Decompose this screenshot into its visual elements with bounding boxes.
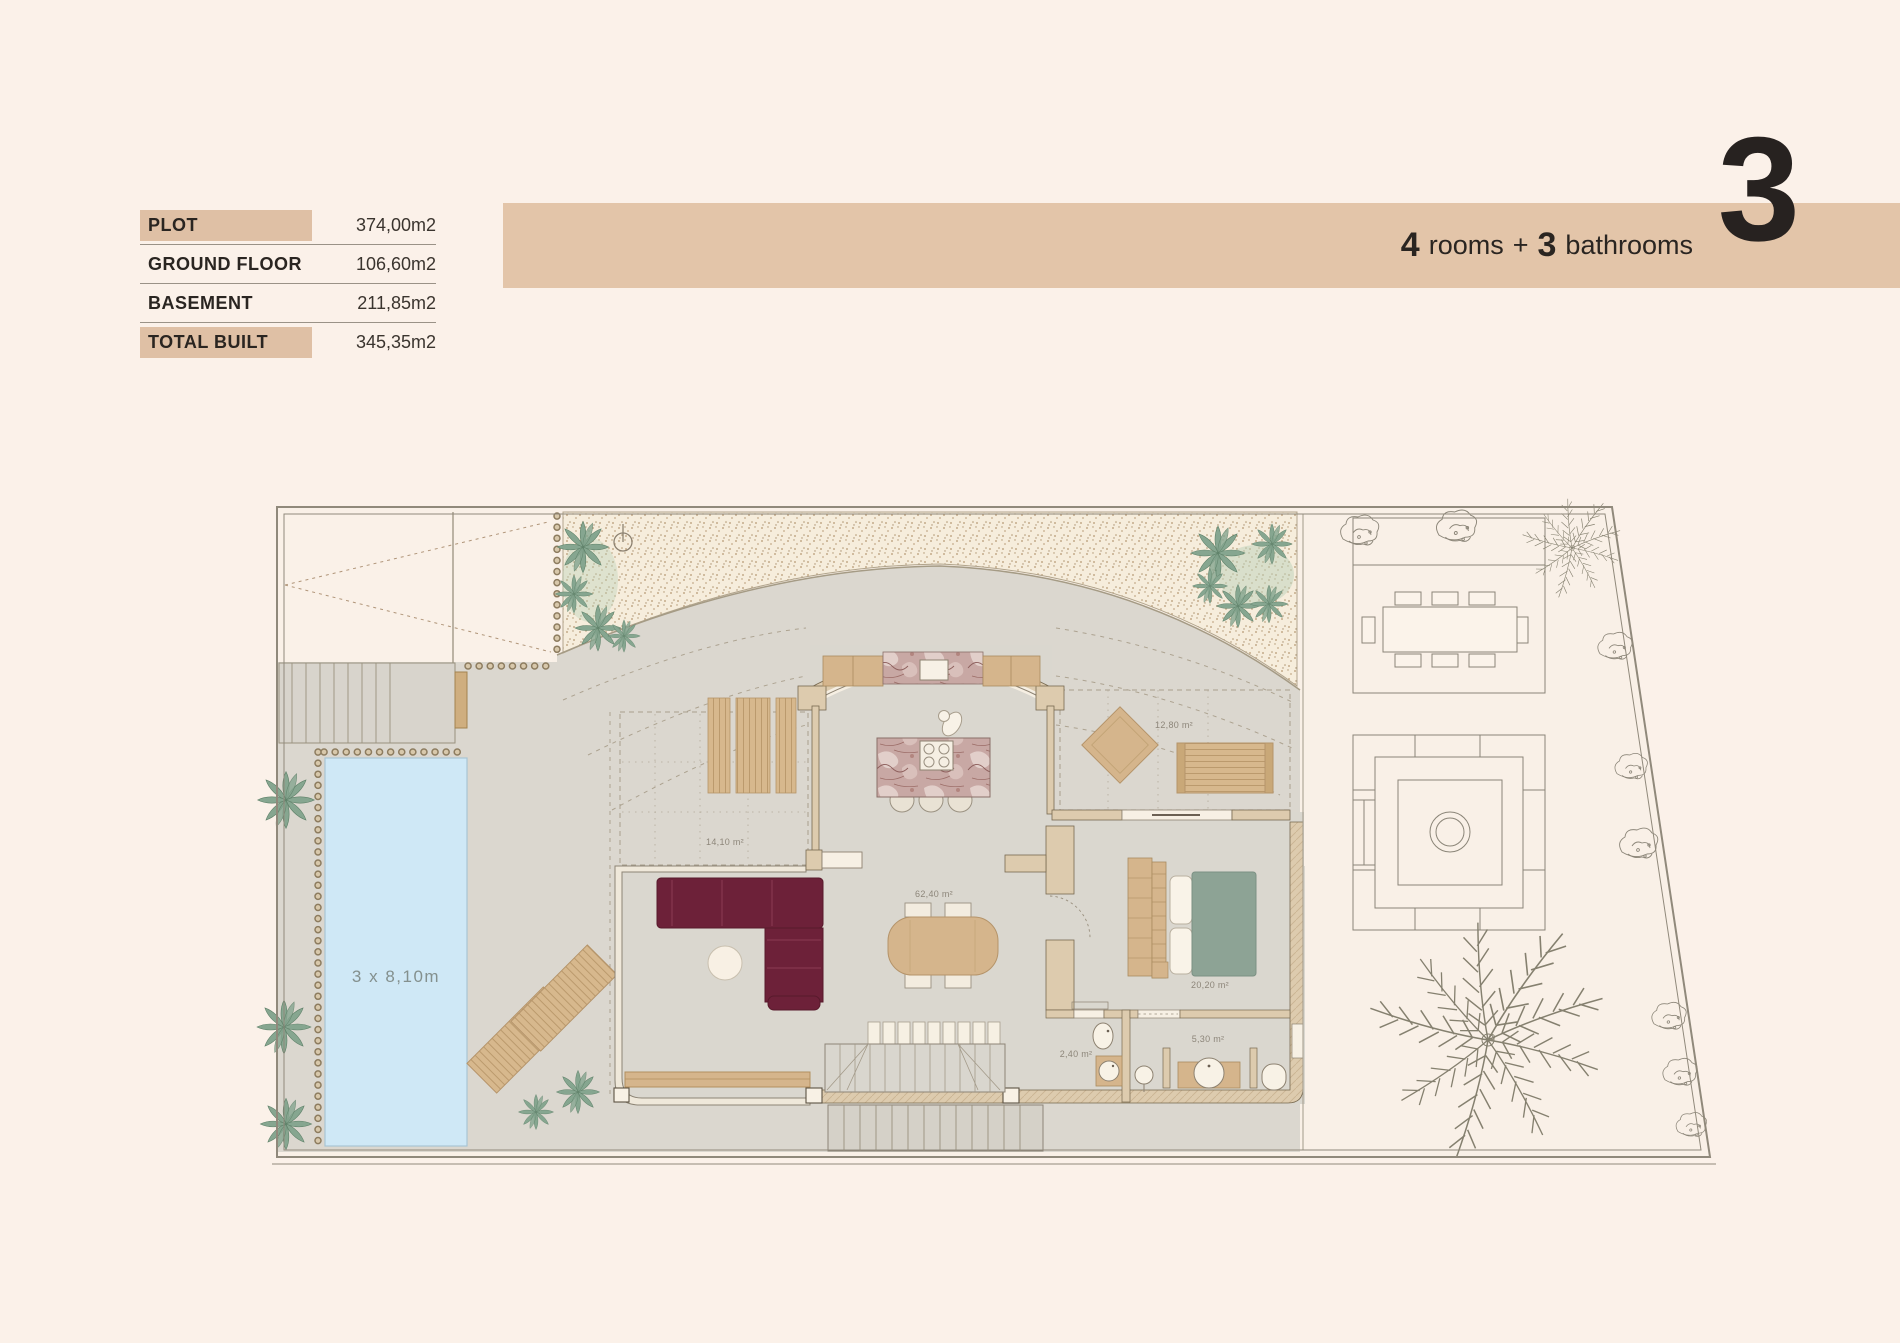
- area-label-covered-terrace: 14,10 m²: [706, 837, 744, 847]
- basin: [1194, 1058, 1224, 1088]
- window-bench: [625, 1072, 810, 1087]
- coffee-table: [708, 946, 742, 980]
- daybed: [1177, 743, 1273, 793]
- toilet: [1093, 1023, 1113, 1049]
- area-label-side-terrace: 12,80 m²: [1155, 720, 1193, 730]
- kitchen-island: [877, 738, 990, 797]
- toilet-2: [1262, 1064, 1286, 1090]
- kitchen-wall-left: [812, 706, 819, 868]
- pool-size-label: 3 x 8,10m: [352, 967, 440, 986]
- kitchen-counter: [823, 652, 1040, 686]
- pedestal-sink: [1135, 1066, 1153, 1084]
- side-stairs: [279, 663, 455, 743]
- bedroom-window: [1292, 1024, 1303, 1058]
- kitchen-sink: [920, 660, 948, 680]
- garden-gate: [455, 672, 467, 728]
- bedside-table: [1152, 962, 1168, 978]
- pool: [325, 758, 467, 1146]
- area-label-bedroom: 20,20 m²: [1191, 980, 1229, 990]
- kitchen-wall-right: [1047, 706, 1054, 814]
- entrance-door: [806, 850, 862, 870]
- exterior-stairs: [828, 1105, 1043, 1151]
- area-label-wc: 2,40 m²: [1060, 1049, 1093, 1059]
- area-label-bathroom: 5,30 m²: [1192, 1034, 1225, 1044]
- area-label-living: 62,40 m²: [915, 889, 953, 899]
- floor-plan: 3 x 8,10m 14,10 m² 62,40 m² 12,80 m² 20,…: [0, 0, 1900, 1343]
- driveway: [277, 512, 552, 672]
